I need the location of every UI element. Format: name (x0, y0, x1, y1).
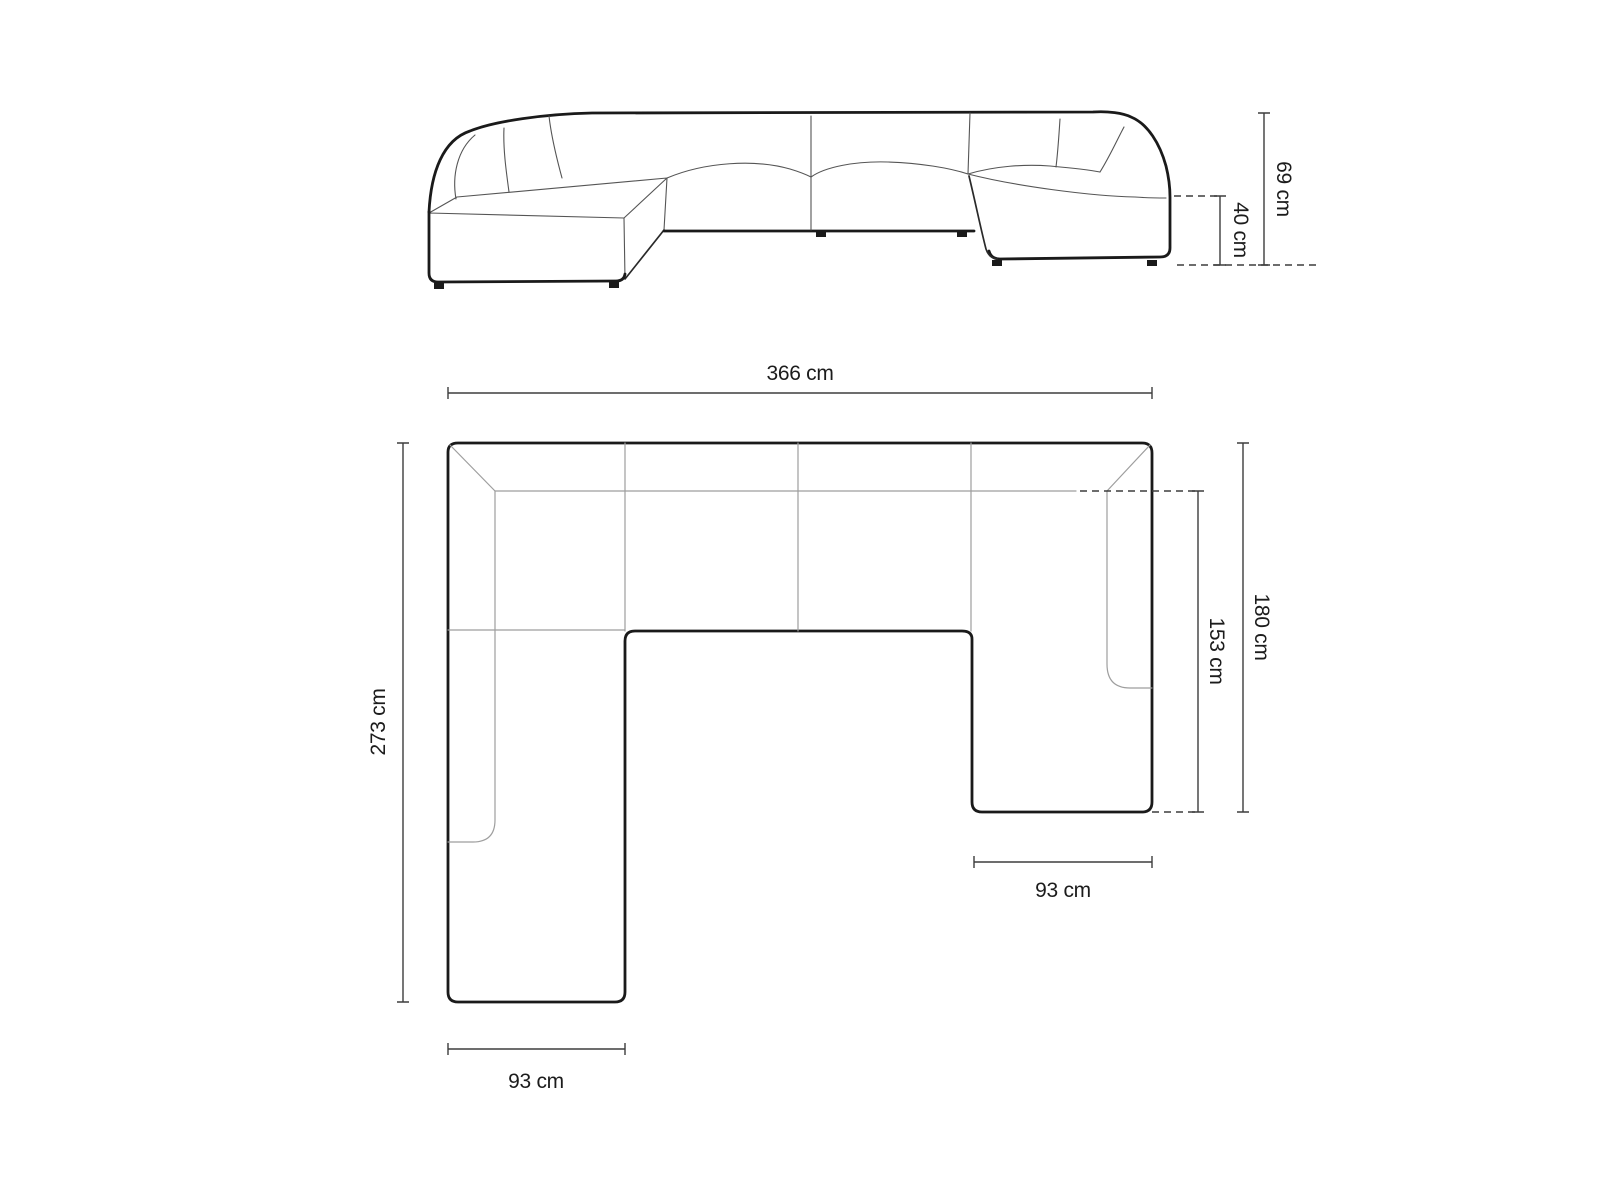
front-view-drawing: 40 cm 69 cm (429, 112, 1316, 289)
right-chaise-front-left-edge (969, 176, 997, 259)
dimension-seat-height: 40 cm (1214, 196, 1252, 265)
plan-corner-miter-left (450, 445, 495, 491)
left-chaise-side-face-back-edge (664, 178, 667, 230)
seat-cushion-arc-left (667, 163, 811, 178)
dimension-left-side-depth: 273 cm (367, 443, 409, 1002)
sofa-dimension-diagram: 40 cm 69 cm 366 cm (0, 0, 1600, 1200)
dimension-right-inner-depth: 153 cm (1192, 491, 1228, 812)
top-view-drawing: 366 cm 273 cm 153 cm 180 cm 93 cm 93 cm (367, 362, 1273, 1093)
dim-label-total-height: 69 cm (1272, 161, 1295, 217)
right-arm-inner-edge (1100, 127, 1124, 172)
right-chaise-surface-edge (968, 174, 1166, 198)
left-chaise-right-edge (624, 218, 625, 279)
left-chaise-side-face-bottom-edge (625, 230, 664, 279)
dim-label-left-leg-width: 93 cm (508, 1070, 564, 1093)
plan-corner-miter-right (1107, 445, 1150, 491)
seat-cushion-arc-right (968, 165, 1100, 174)
right-cushion-seam (1056, 119, 1060, 167)
sofa-foot (1147, 260, 1157, 266)
diagram-svg: 40 cm 69 cm 366 cm (0, 0, 1600, 1200)
dim-label-right-leg-width: 93 cm (1035, 879, 1091, 902)
sofa-foot (434, 283, 444, 289)
left-cushion-seam-1 (504, 128, 509, 192)
dimension-total-height: 69 cm (1258, 113, 1295, 265)
left-arm-inner-edge (455, 135, 475, 199)
dim-label-seat-height: 40 cm (1229, 202, 1252, 258)
dim-label-right-inner-depth: 153 cm (1205, 617, 1228, 684)
sofa-foot (816, 232, 826, 237)
seat-cushion-arc-center (811, 162, 968, 177)
dimension-right-side-depth: 180 cm (1237, 443, 1273, 812)
dim-label-left-side-depth: 273 cm (367, 688, 390, 755)
sofa-foot (957, 232, 967, 237)
left-chaise-outline (429, 212, 625, 282)
plan-left-arm-inner-edge (448, 491, 495, 842)
dimension-total-width: 366 cm (448, 362, 1152, 399)
dimension-left-leg-width: 93 cm (448, 1043, 625, 1093)
plan-right-arm-inner-edge (1107, 491, 1152, 688)
sofa-foot (609, 282, 619, 288)
left-chaise-top-face (429, 178, 667, 218)
plan-outline (448, 443, 1152, 1002)
dim-label-right-side-depth: 180 cm (1250, 593, 1273, 660)
sofa-foot (992, 260, 1002, 266)
module-seam-right (968, 113, 970, 174)
dimension-right-leg-width: 93 cm (974, 856, 1152, 902)
dim-label-total-width: 366 cm (766, 362, 833, 385)
left-cushion-seam-2 (549, 116, 562, 178)
